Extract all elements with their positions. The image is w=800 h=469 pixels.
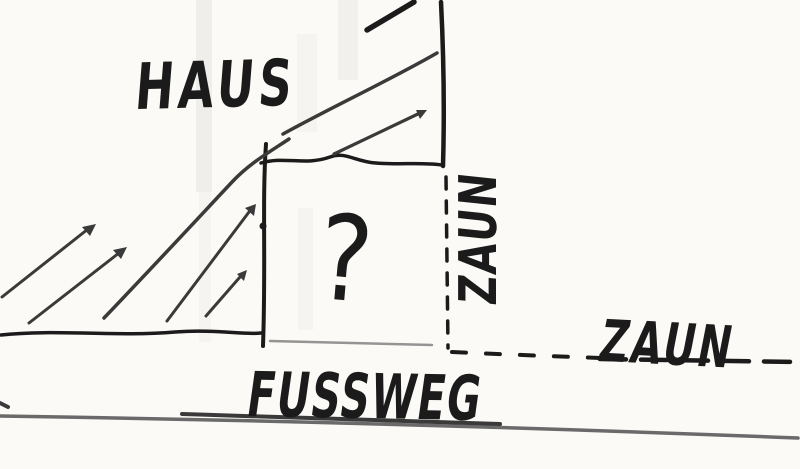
fussweg-label: FUSSWEG [243, 364, 486, 430]
house-wall-line [441, 2, 444, 166]
scanned-sketch-page: HAUS ZAUN ZAUN FUSSWEG ? [0, 0, 800, 469]
fence-dashed-line-horizontal [452, 352, 600, 358]
plot-top-boundary-line [261, 155, 442, 165]
haus-label: HAUS [133, 52, 299, 120]
scan-streak [298, 208, 313, 330]
zaun-horizontal-label: ZAUN [595, 312, 740, 376]
terrain-baseline [1, 331, 261, 335]
ink-blot [260, 223, 267, 230]
plot-left-boundary-line [263, 144, 266, 346]
question-mark: ? [314, 198, 377, 320]
fence-dashed-line-vertical [446, 177, 448, 348]
zaun-vertical-label: ZAUN [453, 177, 503, 307]
scan-streak [338, 0, 358, 80]
page-edge-mark [0, 403, 8, 407]
plot-bottom-edge-line [270, 341, 432, 345]
slope-arrow-line [334, 113, 420, 154]
slope-arrow-head [82, 224, 96, 236]
roof-diagonal-line [367, 2, 414, 30]
slope-arrow-line [206, 277, 240, 316]
